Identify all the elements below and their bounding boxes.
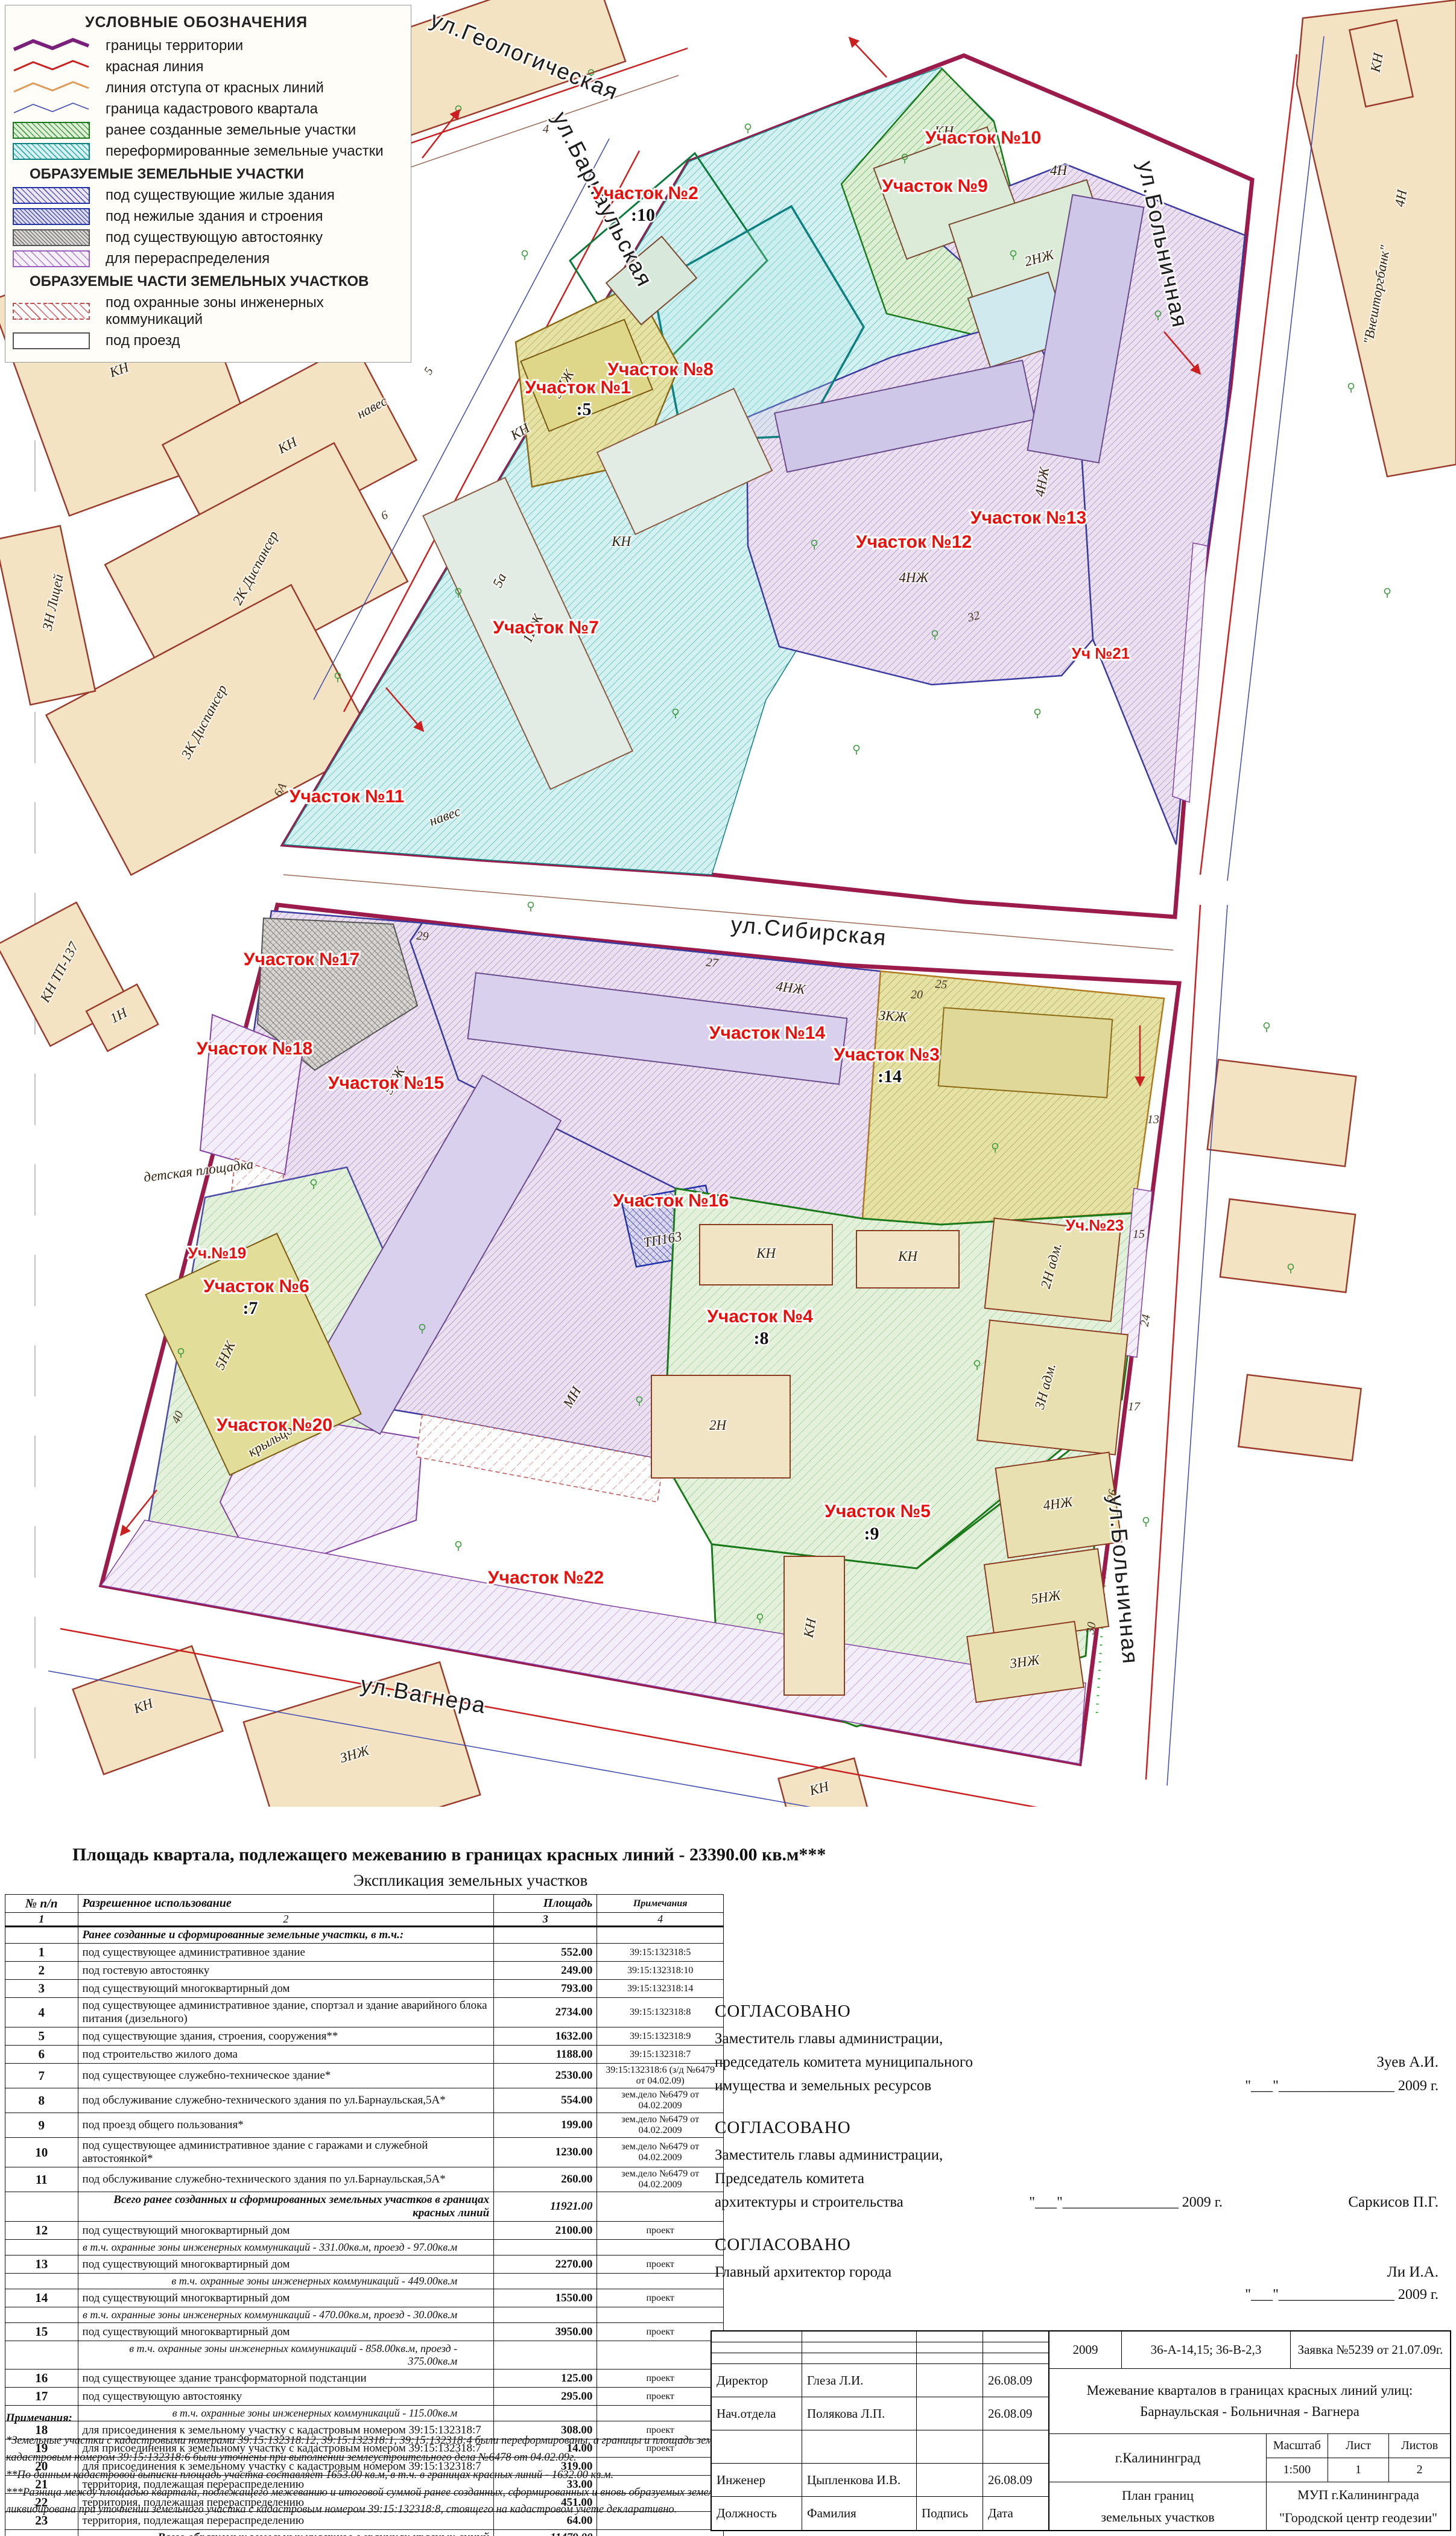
legend-line-swatch xyxy=(13,37,90,54)
parcel-label: Участок №17 xyxy=(244,949,359,969)
building-label: 4Н xyxy=(1392,188,1410,208)
approval-line: Председатель комитета xyxy=(715,2167,864,2191)
approval-block: СОГЛАСОВАНОЗаместитель главы администрац… xyxy=(715,2118,1439,2214)
parcel-label: Участок №16 xyxy=(613,1191,729,1211)
legend-item: под существующую автостоянку xyxy=(13,229,404,246)
legend-item-label: переформированные земельные участки xyxy=(106,143,384,160)
legend-graycross-swatch xyxy=(13,229,90,246)
parcel-label: Участок №18 xyxy=(197,1039,312,1059)
parcel-label: Уч №21 xyxy=(1072,644,1130,662)
table-row: 11под обслуживание служебно-технического… xyxy=(5,2167,724,2192)
legend-item-label: граница кадастрового квартала xyxy=(106,101,318,118)
street-label: ул.Сибирская xyxy=(730,912,888,950)
table-header-cell: № п/п xyxy=(5,1895,78,1913)
approval-line: имущества и земельных ресурсов xyxy=(715,2075,931,2098)
parcel-label: Участок №4 xyxy=(707,1307,813,1327)
north-quarter xyxy=(283,55,1252,917)
approvals-block: СОГЛАСОВАНОЗаместитель главы администрац… xyxy=(715,2002,1439,2327)
parcel-label: Участок №6 xyxy=(203,1276,309,1296)
street-label: ул.Больничная xyxy=(1104,1494,1143,1666)
table-numbering-cell: 3 xyxy=(494,1913,597,1927)
legend-item-label: для перераспределения xyxy=(106,250,270,267)
approval-signatory-name: Саркисов П.Г. xyxy=(1336,2191,1439,2214)
table-row: 7под существующее служебно-техническое з… xyxy=(5,2064,724,2088)
stamp-organization: МУП г.Калининграда"Городской центр геоде… xyxy=(1267,2482,1450,2530)
approval-signatory-name: Ли И.А. xyxy=(1375,2261,1439,2284)
table-numbering-row: 1234 xyxy=(5,1913,724,1927)
table-row: 2под гостевую автостоянку249.0039:15:132… xyxy=(5,1962,724,1980)
legend-bluediag-swatch xyxy=(13,187,90,204)
building-label: КН xyxy=(897,1249,918,1264)
parcel-label: Участок №10 xyxy=(925,128,1041,148)
table-header-cell: Площадь xyxy=(494,1895,597,1913)
table-row: 6под строительство жилого дома1188.0039:… xyxy=(5,2046,724,2064)
house-number-label: 25 xyxy=(935,977,948,992)
title-block: ДиректорГлеза Л.И.26.08.09Нач.отделаПоля… xyxy=(711,2330,1451,2531)
parcel-label: Участок №5 xyxy=(825,1501,931,1521)
building-label: ЗКЖ xyxy=(878,1007,908,1024)
house-number-label: 13 xyxy=(1147,1113,1159,1126)
approval-heading: СОГЛАСОВАНО xyxy=(715,2002,1439,2021)
table-row: Всего образуемых земельных участков в гр… xyxy=(5,2530,724,2536)
table-numbering-cell: 1 xyxy=(5,1913,78,1927)
stamp-project-name: Межевание кварталов в границах красных л… xyxy=(1049,2369,1450,2434)
parcel-label: Участок №15 xyxy=(328,1073,444,1093)
legend-item-label: ранее созданные земельные участки xyxy=(106,122,356,139)
stamp-request: Заявка №5239 от 21.07.09г. xyxy=(1291,2332,1450,2368)
table-header-row: № п/пРазрешенное использованиеПлощадьПри… xyxy=(5,1895,724,1913)
house-number-label: 17 xyxy=(1128,1400,1141,1413)
legend-item-label: под охранные зоны инженерных коммуникаци… xyxy=(106,294,404,328)
parcel-label: Участок №12 xyxy=(856,532,972,552)
house-number-label: 24 xyxy=(1138,1313,1153,1328)
table-row: Ранее созданные и сформированные земельн… xyxy=(5,1927,724,1944)
house-number-label: 5 xyxy=(422,365,436,377)
table-row: 9под проезд общего пользования*199.00зем… xyxy=(5,2113,724,2138)
stamp-sheet-label: Лист xyxy=(1328,2434,1390,2458)
table-row: в т.ч. охранные зоны инженерных коммуник… xyxy=(5,2240,724,2255)
legend-item: под нежилые здания и строения xyxy=(13,208,404,225)
stamp-scale-value: 1:500 xyxy=(1267,2458,1328,2482)
table-row: 1под существующее административное здани… xyxy=(5,1944,724,1962)
legend-item-label: красная линия xyxy=(106,59,204,75)
legend-item: красная линия xyxy=(13,59,404,75)
approval-signatory-name: Зуев А.И. xyxy=(1365,2051,1439,2075)
parcel-label: Участок №9 xyxy=(882,176,988,196)
table-row: 13под существующий многоквартирный дом22… xyxy=(5,2255,724,2274)
cadastral-number-label: :8 xyxy=(754,1328,769,1348)
house-number-label: 27 xyxy=(706,956,720,970)
quarter-area-title: Площадь квартала, подлежащего межеванию … xyxy=(72,1845,1098,1865)
legend-item: под проезд xyxy=(13,332,404,349)
approval-line: архитектуры и строительства xyxy=(715,2191,904,2214)
approval-line: Главный архитектор города xyxy=(715,2261,891,2284)
stamp-doc-type: План границземельных участков xyxy=(1049,2482,1267,2530)
house-number-label: 30 xyxy=(1083,1621,1098,1636)
stamp-sheets-value: 2 xyxy=(1389,2458,1450,2482)
building-label: 4НЖ xyxy=(899,570,929,585)
table-header-cell: Примечания xyxy=(597,1895,724,1913)
approval-block: СОГЛАСОВАНОЗаместитель главы администрац… xyxy=(715,2002,1439,2097)
legend-group-heading: ОБРАЗУЕМЫЕ ЗЕМЕЛЬНЫЕ УЧАСТКИ xyxy=(30,166,404,183)
approval-line: Заместитель главы администрации, xyxy=(715,2027,943,2051)
house-number-label: 4 xyxy=(543,122,549,136)
legend-item: для перераспределения xyxy=(13,250,404,267)
stamp-role-row: Нач.отделаПолякова Л.П.26.08.09 xyxy=(712,2397,1048,2430)
table-numbering-cell: 2 xyxy=(78,1913,494,1927)
legend-bluecross-swatch xyxy=(13,208,90,225)
table-row: 10под существующее административное здан… xyxy=(5,2138,724,2167)
approval-heading: СОГЛАСОВАНО xyxy=(715,2118,1439,2138)
building-label: КН xyxy=(756,1246,776,1261)
table-row: 8под обслуживание служебно-технического … xyxy=(5,2088,724,2113)
cadastral-number-label: :10 xyxy=(631,205,655,225)
house-number-label: 20 xyxy=(911,988,923,1001)
cadastral-number-label: :9 xyxy=(864,1524,879,1544)
legend-line-swatch xyxy=(13,101,90,118)
title-block-personnel: ДиректорГлеза Л.И.26.08.09Нач.отделаПоля… xyxy=(712,2332,1049,2530)
legend-line-swatch xyxy=(13,80,90,97)
parcel-label: Участок №3 xyxy=(834,1045,940,1065)
approval-date-line: "___"________________ 2009 г. xyxy=(1233,2075,1439,2097)
house-number-label: 26 xyxy=(1105,1488,1120,1503)
legend-item: линия отступа от красных линий xyxy=(13,80,404,97)
legend-item-label: под проезд xyxy=(106,332,180,349)
legend-item-label: под существующую автостоянку xyxy=(106,229,323,246)
table-numbering-cell: 4 xyxy=(597,1913,724,1927)
parcel-label: Участок №14 xyxy=(709,1023,826,1043)
cadastral-number-label: :7 xyxy=(243,1298,258,1318)
legend-cyan-swatch xyxy=(13,143,90,160)
table-row: в т.ч. охранные зоны инженерных коммуник… xyxy=(5,2341,724,2370)
stamp-sheets-label: Листов xyxy=(1389,2434,1450,2458)
legend-group-heading: ОБРАЗУЕМЫЕ ЧАСТИ ЗЕМЕЛЬНЫХ УЧАСТКОВ xyxy=(30,273,404,290)
table-row: 14под существующий многоквартирный дом15… xyxy=(5,2289,724,2307)
stamp-columns-row: ДолжностьФамилияПодписьДата xyxy=(712,2497,1048,2530)
stamp-code: 36-А-14,15; 36-В-2,3 xyxy=(1122,2332,1291,2368)
approval-date-line: "___"________________ 2009 г. xyxy=(1017,2192,1223,2214)
legend-item: граница кадастрового квартала xyxy=(13,101,404,118)
legend-violetdiag-swatch xyxy=(13,250,90,267)
stamp-role-row xyxy=(712,2430,1048,2464)
stamp-scale-label: Масштаб xyxy=(1267,2434,1328,2458)
parcel-label: Уч.№19 xyxy=(188,1244,246,1262)
stamp-role-row: ДиректорГлеза Л.И.26.08.09 xyxy=(712,2364,1048,2397)
table-header-cell: Разрешенное использование xyxy=(78,1895,494,1913)
parcel-label: Участок №11 xyxy=(290,787,405,807)
legend-item: под охранные зоны инженерных коммуникаци… xyxy=(13,294,404,328)
building-label: 4Н xyxy=(1050,163,1068,178)
table-row: 5под существующие здания, строения, соор… xyxy=(5,2027,724,2046)
legend-title: УСЛОВНЫЕ ОБОЗНАЧЕНИЯ xyxy=(85,14,404,31)
table-row: 3под существующий многоквартирный дом793… xyxy=(5,1980,724,1998)
cadastral-number-label: :14 xyxy=(878,1067,902,1086)
legend-item-label: под нежилые здания и строения xyxy=(106,208,323,225)
parcel-label: Уч.№23 xyxy=(1066,1216,1124,1234)
table-row: в т.ч. охранные зоны инженерных коммуник… xyxy=(5,2307,724,2323)
legend-item-label: границы территории xyxy=(106,37,243,54)
legend-item: под существующие жилые здания xyxy=(13,187,404,204)
house-number-label: 15 xyxy=(1133,1228,1145,1241)
parcel-label: Участок №20 xyxy=(217,1415,332,1435)
stamp-year: 2009 xyxy=(1049,2332,1122,2368)
explication-subtitle: Экспликация земельных участков xyxy=(181,1871,760,1890)
approval-heading: СОГЛАСОВАНО xyxy=(715,2235,1439,2255)
stamp-sheet-value: 1 xyxy=(1328,2458,1390,2482)
table-row: Всего ранее созданных и сформированных з… xyxy=(5,2192,724,2222)
approval-line: Заместитель главы администрации, xyxy=(715,2144,943,2167)
approval-line: председатель комитета муниципального xyxy=(715,2051,973,2075)
stamp-city: г.Калининград xyxy=(1049,2434,1267,2482)
legend-item-label: линия отступа от красных линий xyxy=(106,80,324,97)
table-row: 4под существующее административное здани… xyxy=(5,1998,724,2027)
legend-item-label: под существующие жилые здания xyxy=(106,187,335,204)
legend-line-swatch xyxy=(13,59,90,75)
table-row: 12под существующий многоквартирный дом21… xyxy=(5,2222,724,2240)
house-number-label: 6 xyxy=(379,508,390,522)
legend-reddash-swatch xyxy=(13,303,90,320)
building-label: 2Н xyxy=(709,1418,727,1433)
parcel-label: Участок №7 xyxy=(493,618,599,638)
legend-green-swatch xyxy=(13,122,90,139)
legend-item: ранее созданные земельные участки xyxy=(13,122,404,139)
parcel-label: Участок №22 xyxy=(488,1568,604,1588)
building-label: КН xyxy=(611,534,631,549)
house-number-label: 29 xyxy=(416,929,429,943)
legend-panel: УСЛОВНЫЕ ОБОЗНАЧЕНИЯ границы территориик… xyxy=(5,5,411,363)
table-row: 17под существующую автостоянку295.00прое… xyxy=(5,2388,724,2406)
parcel-label: Участок №8 xyxy=(607,360,714,379)
table-row: 15под существующий многоквартирный дом39… xyxy=(5,2323,724,2341)
table-row: в т.ч. охранные зоны инженерных коммуник… xyxy=(5,2274,724,2289)
legend-item: переформированные земельные участки xyxy=(13,143,404,160)
legend-empty-swatch xyxy=(13,332,90,349)
cadastral-plan-sheet: ул.Геологическаяул.Барнаульскаяул.Больни… xyxy=(0,0,1456,2536)
parcel-label: Участок №13 xyxy=(970,508,1086,528)
approval-date-line: "___"________________ 2009 г. xyxy=(1233,2284,1439,2306)
cadastral-number-label: :5 xyxy=(577,399,592,419)
approval-block: СОГЛАСОВАНОГлавный архитектор городаЛи И… xyxy=(715,2235,1439,2307)
parcel-label: Участок №1 xyxy=(525,378,631,398)
stamp-role-row: ИнженерЦыпленкова И.В.26.08.09 xyxy=(712,2464,1048,2497)
parcel-label: Участок №2 xyxy=(592,183,698,203)
legend-item: границы территории xyxy=(13,37,404,54)
table-row: 16под существующее здание трансформаторн… xyxy=(5,2370,724,2388)
